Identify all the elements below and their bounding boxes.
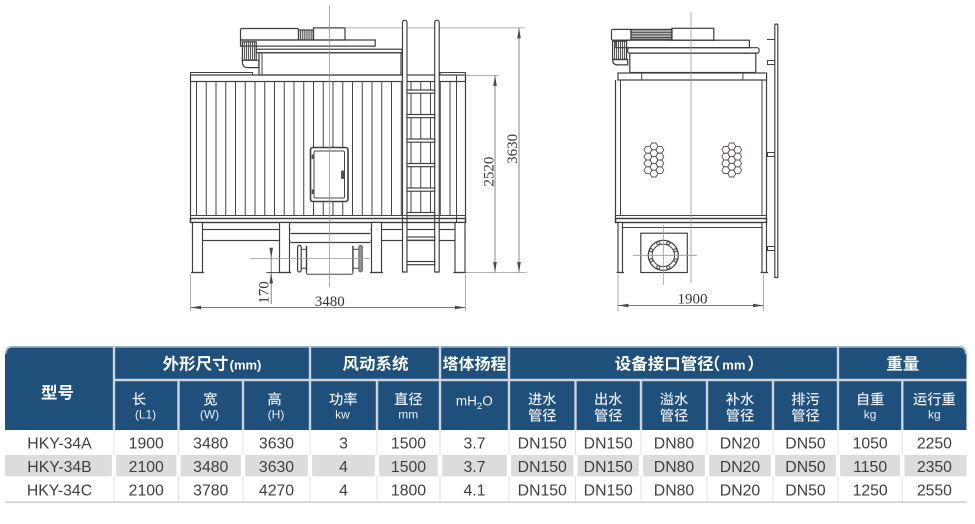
svg-text:(H): (H) [268, 408, 285, 422]
svg-text:3630: 3630 [259, 459, 294, 476]
svg-text:(W): (W) [200, 408, 219, 422]
svg-text:4: 4 [339, 459, 348, 476]
svg-text:2520: 2520 [481, 157, 497, 187]
svg-text:DN50: DN50 [785, 435, 826, 452]
svg-text:3630: 3630 [505, 134, 521, 164]
svg-text:DN150: DN150 [584, 459, 633, 476]
svg-text:DN20: DN20 [720, 459, 761, 476]
svg-text:170: 170 [257, 281, 273, 304]
svg-text:DN80: DN80 [654, 435, 695, 452]
svg-text:(mm): (mm) [230, 358, 262, 373]
svg-text:DN150: DN150 [584, 435, 633, 452]
svg-text:3: 3 [339, 435, 348, 452]
svg-text:DN80: DN80 [654, 482, 695, 499]
svg-text:3.7: 3.7 [464, 459, 486, 476]
svg-text:4270: 4270 [259, 482, 294, 499]
svg-text:3780: 3780 [193, 482, 228, 499]
svg-text:3480: 3480 [315, 294, 345, 310]
svg-text:2550: 2550 [917, 482, 952, 499]
svg-text:1250: 1250 [853, 482, 888, 499]
svg-text:1050: 1050 [853, 435, 888, 452]
svg-text:mm: mm [398, 408, 418, 422]
svg-text:DN50: DN50 [785, 482, 826, 499]
svg-text:HKY-34A: HKY-34A [27, 435, 92, 452]
svg-text:1900: 1900 [678, 292, 708, 308]
svg-text:kw: kw [335, 408, 350, 422]
svg-text:DN150: DN150 [584, 482, 633, 499]
svg-text:3480: 3480 [193, 435, 228, 452]
svg-text:2100: 2100 [129, 459, 164, 476]
svg-text:HKY-34C: HKY-34C [27, 482, 92, 499]
svg-text:1900: 1900 [129, 435, 164, 452]
svg-text:3480: 3480 [193, 459, 228, 476]
svg-text:3630: 3630 [259, 435, 294, 452]
svg-text:DN150: DN150 [518, 435, 567, 452]
svg-text:2350: 2350 [917, 459, 952, 476]
svg-text:kg: kg [864, 408, 877, 422]
svg-text:1500: 1500 [391, 459, 426, 476]
svg-text:mm: mm [722, 358, 745, 373]
svg-text:DN150: DN150 [518, 482, 567, 499]
svg-text:2100: 2100 [129, 482, 164, 499]
svg-text:1800: 1800 [391, 482, 426, 499]
svg-text:2250: 2250 [917, 435, 952, 452]
svg-text:DN50: DN50 [785, 459, 826, 476]
svg-text:4: 4 [339, 482, 348, 499]
svg-text:3.7: 3.7 [464, 435, 486, 452]
svg-text:DN150: DN150 [518, 459, 567, 476]
svg-text:(L1): (L1) [135, 408, 156, 422]
svg-text:HKY-34B: HKY-34B [27, 459, 91, 476]
svg-text:kg: kg [928, 408, 941, 422]
svg-text:DN80: DN80 [654, 459, 695, 476]
svg-text:1500: 1500 [391, 435, 426, 452]
svg-text:DN20: DN20 [720, 435, 761, 452]
svg-text:DN20: DN20 [720, 482, 761, 499]
svg-text:1150: 1150 [853, 459, 887, 476]
svg-text:4.1: 4.1 [464, 482, 486, 499]
